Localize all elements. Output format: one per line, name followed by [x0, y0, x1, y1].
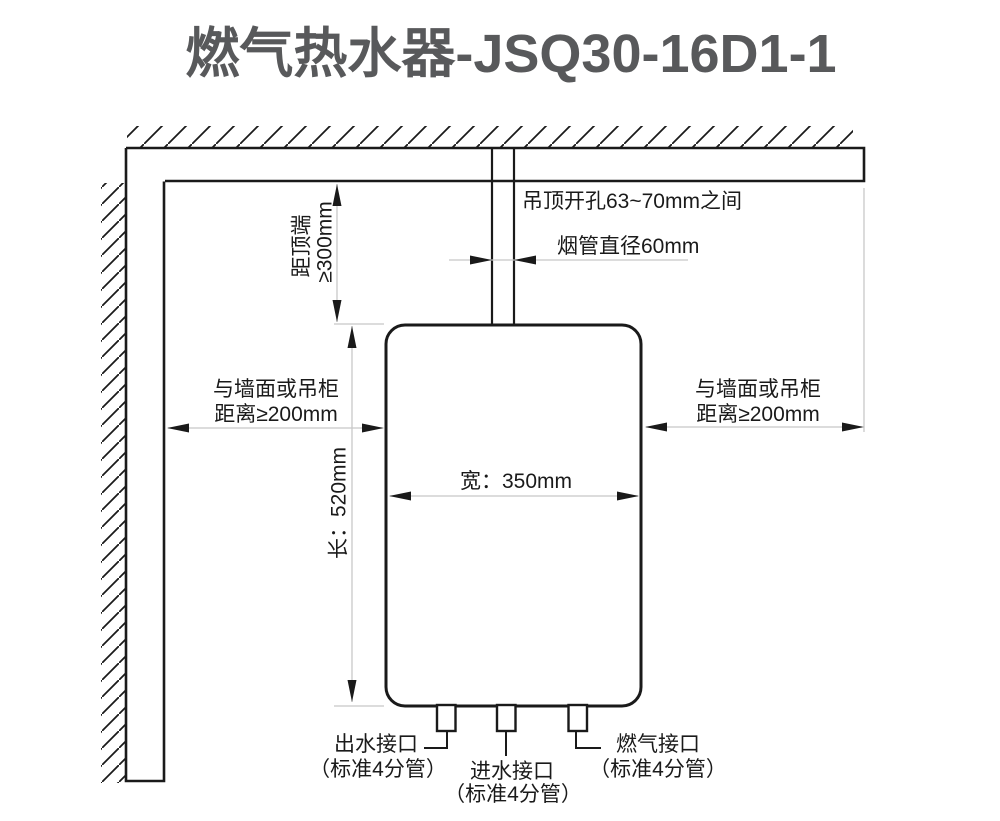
inlet-label-line1: 进水接口 [470, 760, 554, 783]
right-clearance-label-line2: 距离≥200mm [696, 403, 820, 426]
arrow-down-icon [348, 680, 357, 702]
inlet-nozzle [497, 705, 516, 731]
arrow-right-icon [842, 423, 864, 432]
arrow-left-icon [514, 256, 536, 265]
heater-body [386, 325, 641, 706]
left-clearance-label-line2: 距离≥200mm [214, 403, 338, 426]
arrow-down-icon [333, 300, 342, 322]
arrow-right-icon [470, 256, 492, 265]
gas-connection-label: 燃气接口 （标准4分管） [589, 733, 727, 781]
ceiling-hatch [127, 126, 853, 147]
installation-diagram: 燃气热水器-JSQ30-16D1-1 距顶端 ≥300mm 长：520mm [0, 0, 1000, 821]
arrow-left-icon [645, 423, 667, 432]
wall-hatch [101, 183, 125, 783]
dimension-right-clearance: 与墙面或吊柜 距离≥200mm [645, 378, 864, 432]
dimension-top-clearance: 距顶端 ≥300mm [291, 184, 342, 322]
flue-diameter-callout: 烟管直径60mm [449, 235, 699, 265]
wall [126, 148, 164, 781]
inlet-connection-label: 进水接口 （标准4分管） [444, 760, 582, 806]
top-clearance-label-line2: ≥300mm [314, 201, 337, 283]
ceiling [126, 148, 864, 181]
gas-nozzle [569, 705, 588, 731]
outlet-nozzle [437, 705, 456, 731]
inlet-label-line2: （标准4分管） [444, 783, 582, 806]
outlet-leader-line [424, 732, 447, 748]
arrow-left-icon [167, 424, 189, 433]
flue-pipe [492, 148, 514, 326]
arrow-up-icon [348, 326, 357, 348]
flue-diameter-label: 烟管直径60mm [557, 235, 699, 258]
ceiling-hole-label: 吊顶开孔63~70mm之间 [522, 190, 742, 213]
gas-leader-line [576, 732, 601, 748]
gas-label-line2: （标准4分管） [589, 758, 727, 781]
gas-label-line1: 燃气接口 [616, 733, 700, 756]
height-label: 长：520mm [328, 447, 351, 559]
right-clearance-label-line1: 与墙面或吊柜 [695, 378, 821, 401]
left-clearance-label-line1: 与墙面或吊柜 [213, 378, 339, 401]
outlet-label-line1: 出水接口 [334, 733, 418, 756]
installation-diagram-page: 燃气热水器-JSQ30-16D1-1 距顶端 ≥300mm 长：520mm [0, 0, 1000, 821]
outlet-label-line2: （标准4分管） [309, 758, 447, 781]
outlet-connection-label: 出水接口 （标准4分管） [309, 733, 447, 781]
arrow-right-icon [362, 424, 384, 433]
width-label: 宽：350mm [460, 470, 572, 493]
top-clearance-label-line1: 距顶端 [291, 215, 314, 278]
page-title: 燃气热水器-JSQ30-16D1-1 [185, 24, 836, 84]
